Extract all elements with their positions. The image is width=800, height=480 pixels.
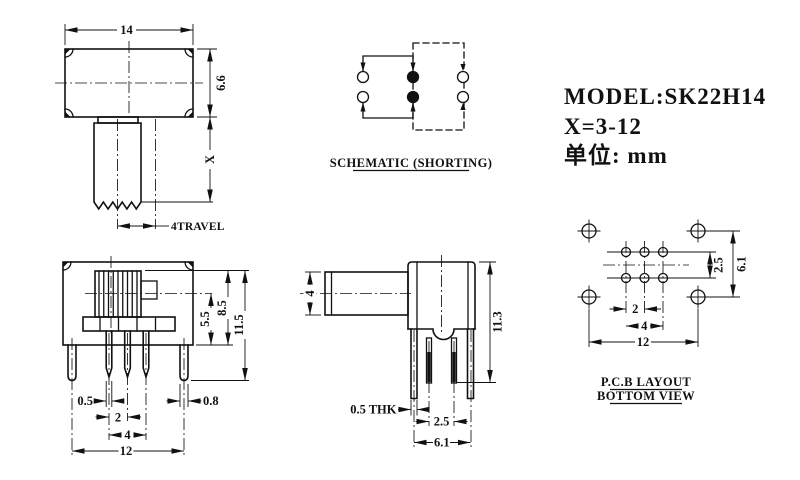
mount-hole-crosses (578, 220, 710, 309)
dim-body-height-label: 8.5 (215, 300, 229, 316)
corner-fill (188, 49, 194, 55)
side-view: 4 11.3 0.5 THK 2.5 6.1 (300, 255, 505, 450)
dim-pin-span-label: 4 (124, 428, 131, 442)
mount-holes (578, 220, 710, 309)
schematic-caption: SCHEMATIC (SHORTING) (330, 156, 493, 170)
unit-label: 单位: mm (564, 142, 668, 168)
corner-fill (65, 112, 71, 118)
dim-pin-pitch-label: 2 (115, 411, 121, 425)
title-block: MODEL:SK22H14 X=3-12 单位: mm (564, 84, 766, 168)
dim-peg-width-label: 0.8 (203, 394, 219, 408)
terminal-common (408, 92, 419, 103)
contact-link-bottom (363, 103, 413, 119)
dim-pin-width-label: 0.5 (77, 394, 93, 408)
terminal-strip (83, 317, 175, 331)
dim-width-label: 14 (120, 23, 133, 37)
dim-total-height-label: 11.3 (491, 311, 505, 332)
dim-pad-span-label: 4 (641, 319, 648, 333)
dim-height-label: 6.6 (214, 75, 228, 91)
dim-row-span-label: 6.1 (735, 256, 749, 272)
dim-travel-label: 4TRAVEL (171, 221, 225, 233)
terminal-open (458, 92, 469, 103)
dim-thickness-label: 0.5 THK (350, 403, 397, 417)
corner-fill (188, 262, 194, 268)
dim-outer-span-label: 6.1 (434, 436, 450, 450)
corner-fill (188, 112, 194, 118)
dim-center-height-label: 5.5 (198, 311, 212, 327)
pin-side-fill (427, 352, 430, 382)
schematic-view: SCHEMATIC (SHORTING) (330, 43, 493, 171)
terminal-open (358, 92, 369, 103)
terminal-common (408, 72, 419, 83)
pcb-caption-line2: BOTTOM VIEW (597, 389, 695, 403)
knob-knurling (99, 271, 137, 317)
technical-drawing-sheet: 14 6.6 X 4TRAVEL SCHEMATIC (SHORTING) MO… (0, 0, 800, 480)
arrow-mark (460, 64, 465, 71)
shaft-neck (98, 117, 138, 123)
terminal-open (458, 72, 469, 83)
contact-link-top (363, 56, 413, 72)
knob-tab (141, 281, 157, 299)
dim-shaft-label: 4 (303, 290, 317, 297)
model-number: MODEL:SK22H14 (564, 84, 766, 109)
dim-peg-span-label: 12 (120, 444, 133, 458)
terminal-open (358, 72, 369, 83)
x-range: X=3-12 (564, 114, 642, 139)
arrow-mark (460, 103, 465, 110)
front-view: 5.5 8.5 11.5 0.5 2 4 12 0.8 (63, 256, 249, 458)
dim-hole-span-label: 12 (637, 335, 650, 349)
pin-side-fill (452, 352, 455, 382)
dim-total-height-label: 11.5 (232, 314, 246, 335)
corner-fill (65, 49, 71, 55)
top-view: 14 6.6 X 4TRAVEL (55, 23, 228, 233)
dim-pad-pitch-label: 2 (632, 302, 638, 316)
dashed-switch-frame (413, 43, 464, 130)
dim-shaft-label: X (203, 155, 217, 164)
dim-row-pitch-label: 2.5 (434, 415, 450, 429)
pcb-layout-view: 2.5 6.1 2 4 12 P.C.B LAYOUT BOTTOM VIEW (578, 220, 749, 404)
terminal-strip-dividers (100, 317, 156, 331)
peg-side (468, 329, 474, 399)
dim-row-pitch-label: 2.5 (712, 257, 726, 273)
pcb-caption-line1: P.C.B LAYOUT (601, 375, 692, 389)
corner-fill (63, 262, 69, 268)
